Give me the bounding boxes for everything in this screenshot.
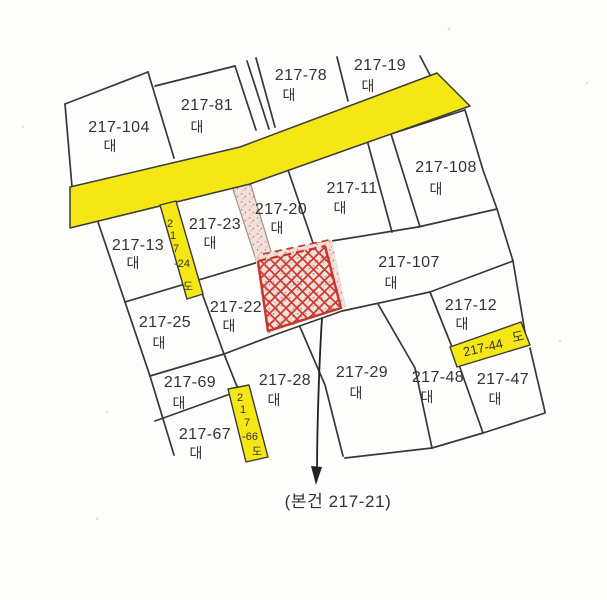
parcel-category-217-12: 대 [456,316,469,332]
boundary-line [430,261,513,292]
parcel-category-217-81: 대 [191,119,204,135]
parcel-category-217-48: 대 [421,389,434,405]
boundary-line [65,72,148,104]
parcel-label-217-29: 217-29 [336,364,388,381]
parcel-category-217-29: 대 [350,385,363,401]
boundary-line [155,66,235,86]
parcel-label-217-108: 217-108 [415,159,477,176]
parcel-label-217-78: 217-78 [275,67,327,84]
strip-217-24-char: 7 [173,243,179,255]
subject-callout-text: (본건 217-21) [285,492,392,511]
boundary-line [224,354,238,389]
boundary-line [337,57,348,101]
parcel-category-217-67: 대 [190,445,203,461]
strip-217-24-char: 2 [167,218,173,230]
parcel-category-217-107: 대 [385,275,398,291]
parcel-label-217-25: 217-25 [139,314,191,331]
parcel-label-217-13: 217-13 [112,237,164,254]
parcel-category-217-78: 대 [283,87,296,103]
parcel-label-217-11: 217-11 [326,180,377,197]
parcel-label-217-20: 217-20 [255,201,307,218]
strip-217-24-char: -24 [174,258,190,270]
parcel-label-217-22: 217-22 [210,299,262,316]
parcel-label-217-81: 217-81 [181,97,233,114]
cadastral-map-page: 217-104 대 217-81 대 217-78 대 217-19 대 217… [0,0,607,600]
strip-217-66-char: 2 [237,392,243,404]
parcel-label-217-28: 217-28 [259,372,311,389]
parcel-category-217-20: 대 [271,220,284,236]
parcel-label-217-19: 217-19 [354,57,406,74]
boundary-line [530,348,545,412]
parcel-category-217-108: 대 [430,181,443,197]
parcel-category-217-11: 대 [334,200,347,216]
parcel-category-217-22: 대 [223,318,236,334]
strip-217-66-char: -66 [242,431,258,443]
parcel-label-217-67: 217-67 [179,426,231,443]
strip-217-24-char: 도 [183,281,193,293]
parcel-label-217-48: 217-48 [412,369,464,386]
strip-labels: 2 1 7 -24 도 2 1 7 -66 도 217-44 도 [167,218,526,458]
strip-217-66-char: 7 [244,417,250,429]
strip-217-24-char: 1 [170,230,176,242]
parcel-label-217-69: 217-69 [164,374,216,391]
parcel-label-217-107: 217-107 [378,254,440,271]
boundary-line [497,209,513,261]
callout-arrow-line [317,318,322,477]
parcel-category-217-13: 대 [127,255,140,271]
boundary-line [391,134,420,227]
parcel-category-217-104: 대 [104,138,117,154]
boundary-line [150,354,224,376]
parcel-label-217-104: 217-104 [88,119,150,136]
callout-arrowhead [311,466,322,485]
parcel-label-217-47: 217-47 [477,371,529,388]
parcel-category-217-47: 대 [489,391,502,407]
boundary-line [235,66,256,130]
boundary-line [155,393,233,421]
parcel-label-217-12: 217-12 [445,297,497,314]
subject-callout: (본건 217-21) [285,318,392,511]
parcel-category-217-23: 대 [204,235,217,251]
boundary-line [98,222,125,302]
parcel-label-217-23: 217-23 [189,216,241,233]
strip-217-66-char: 도 [252,446,262,458]
parcel-category-217-25: 대 [153,335,166,351]
parcel-category-217-69: 대 [173,395,186,411]
boundary-line [300,327,343,456]
boundary-line [345,413,545,458]
boundary-line [420,56,431,77]
strip-217-66-char: 1 [240,404,246,416]
cadastral-map: 217-104 대 217-81 대 217-78 대 217-19 대 217… [0,0,607,600]
boundary-line [418,209,497,227]
parcel-category-217-19: 대 [362,78,375,94]
boundary-line [65,104,72,187]
parcel-category-217-28: 대 [268,392,281,408]
